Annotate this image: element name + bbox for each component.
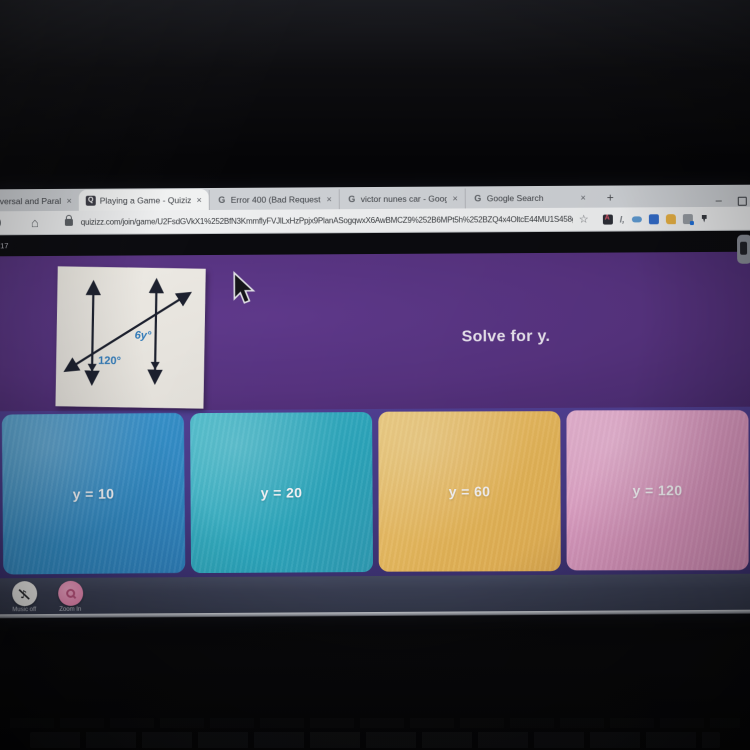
answer-label: y = 120 (633, 482, 683, 498)
lock-icon (65, 219, 73, 226)
pushpin-icon[interactable] (700, 213, 710, 223)
tab-title: Google Search (487, 193, 575, 204)
google-favicon-icon: G (217, 195, 227, 205)
tab-google-search[interactable]: G Google Search × (465, 188, 593, 209)
zoom-in-control[interactable]: Zoom In (53, 581, 87, 613)
question-diagram: 120° 6y° (55, 266, 205, 408)
angle-label-120: 120° (98, 355, 121, 367)
parallel-mark-right-icon (151, 362, 160, 370)
answer-card-2[interactable]: y = 20 (190, 412, 373, 573)
reload-icon[interactable] (0, 216, 1, 229)
extension-icons: I, (603, 213, 710, 224)
quizizz-favicon-icon: Q (86, 195, 96, 205)
extension-icon-4[interactable] (649, 214, 659, 224)
laptop-screen: versal and Parallel Li × Q Playing a Gam… (0, 185, 750, 619)
zoom-in-button[interactable] (58, 581, 83, 606)
answer-label: y = 20 (261, 484, 303, 500)
close-icon[interactable]: × (64, 196, 73, 206)
answer-options: y = 10 y = 20 y = 60 y = 120 (0, 407, 750, 579)
photo-background: versal and Parallel Li × Q Playing a Gam… (0, 0, 750, 750)
extension-icon-1[interactable] (603, 214, 613, 224)
music-off-control[interactable]: ♪ Music off (7, 581, 41, 613)
close-icon[interactable]: × (578, 193, 587, 203)
tab-quizizz[interactable]: Q Playing a Game - Quizizz × (79, 189, 209, 211)
mouse-cursor-icon (230, 271, 256, 309)
keyboard-hint (30, 732, 720, 748)
answer-label: y = 60 (449, 483, 491, 499)
question-counter: /17 (0, 241, 9, 250)
new-tab-button[interactable]: + (603, 191, 618, 205)
maximize-button[interactable] (738, 196, 747, 205)
keyboard-hint (10, 718, 740, 728)
music-off-icon: ♪ (17, 587, 31, 601)
tab-title: versal and Parallel Li (0, 196, 61, 206)
answer-card-3[interactable]: y = 60 (378, 411, 560, 571)
tab-title: victor nunes car - Google Search (361, 194, 447, 205)
extension-icon-5[interactable] (666, 214, 676, 224)
tab-victor-nunes-search[interactable]: G victor nunes car - Google Search × (339, 188, 465, 209)
question-prompt: Solve for y. (462, 328, 551, 347)
extension-icon-6[interactable] (683, 214, 693, 224)
corner-widget-button[interactable] (737, 235, 750, 264)
game-footer-bar: ♪ Music off Zoom In (0, 574, 750, 615)
angle-label-6y: 6y° (135, 330, 152, 342)
music-off-button[interactable]: ♪ (12, 581, 37, 606)
tab-parallel-lines[interactable]: versal and Parallel Li × (0, 191, 79, 212)
tab-title: Playing a Game - Quizizz (100, 195, 191, 206)
zoom-in-label: Zoom In (59, 607, 81, 613)
extension-icon-3[interactable] (632, 214, 642, 224)
extension-icon-2[interactable]: I, (620, 214, 625, 224)
tab-error-400[interactable]: G Error 400 (Bad Request)!!1 × (209, 189, 339, 210)
answer-label: y = 10 (73, 486, 115, 502)
question-area: 120° 6y° Solve for y. (0, 252, 750, 412)
google-favicon-icon: G (347, 194, 357, 204)
answer-card-4[interactable]: y = 120 (566, 410, 748, 570)
answer-card-1[interactable]: y = 10 (2, 413, 186, 575)
bookmark-star-icon[interactable]: ☆ (579, 213, 589, 226)
tab-title: Error 400 (Bad Request)!!1 (231, 194, 321, 205)
google-favicon-icon: G (473, 193, 483, 203)
home-icon[interactable]: ⌂ (31, 215, 39, 230)
close-icon[interactable]: × (324, 194, 333, 204)
music-off-label: Music off (12, 607, 36, 613)
close-icon[interactable]: × (194, 195, 203, 205)
transversal-line (66, 291, 189, 372)
close-icon[interactable]: × (450, 193, 459, 203)
magnifier-icon (66, 589, 75, 598)
minimize-button[interactable]: – (716, 195, 722, 207)
parallel-mark-left-icon (88, 364, 97, 372)
url-text[interactable]: quizizz.com/join/game/U2FsdGVkX1%252BfN3… (81, 215, 573, 227)
